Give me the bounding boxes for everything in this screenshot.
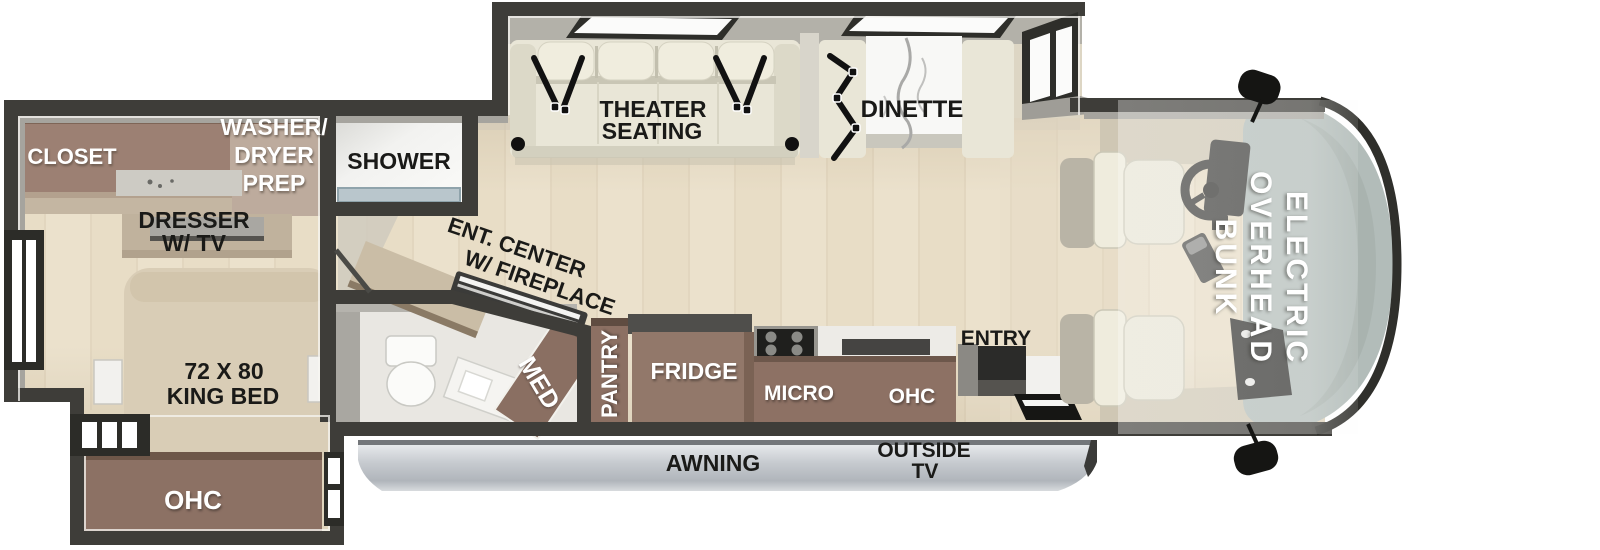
svg-text:DRYER: DRYER [234, 142, 314, 168]
svg-text:WASHER/: WASHER/ [220, 114, 328, 140]
svg-text:OVERHEAD: OVERHEAD [1244, 171, 1277, 365]
svg-text:BUNK: BUNK [1209, 219, 1242, 318]
svg-text:OHC: OHC [889, 385, 936, 408]
svg-text:MICRO: MICRO [764, 382, 834, 405]
svg-text:DINETTE: DINETTE [861, 96, 964, 123]
svg-text:OHC: OHC [164, 485, 222, 515]
svg-text:PANTRY: PANTRY [597, 330, 622, 418]
svg-text:FRIDGE: FRIDGE [651, 358, 738, 384]
svg-text:TV: TV [912, 460, 939, 483]
svg-text:OUTSIDE: OUTSIDE [877, 439, 970, 462]
svg-text:KING BED: KING BED [167, 383, 279, 409]
svg-text:CLOSET: CLOSET [27, 144, 117, 169]
svg-text:SHOWER: SHOWER [347, 148, 451, 174]
svg-text:ELECTRIC: ELECTRIC [1280, 191, 1313, 365]
svg-text:AWNING: AWNING [666, 450, 761, 476]
svg-text:W/ TV: W/ TV [162, 230, 227, 256]
svg-text:PREP: PREP [243, 170, 306, 196]
svg-text:ENTRY: ENTRY [961, 327, 1031, 350]
svg-text:SEATING: SEATING [602, 118, 703, 144]
svg-text:72 X 80: 72 X 80 [184, 358, 263, 384]
